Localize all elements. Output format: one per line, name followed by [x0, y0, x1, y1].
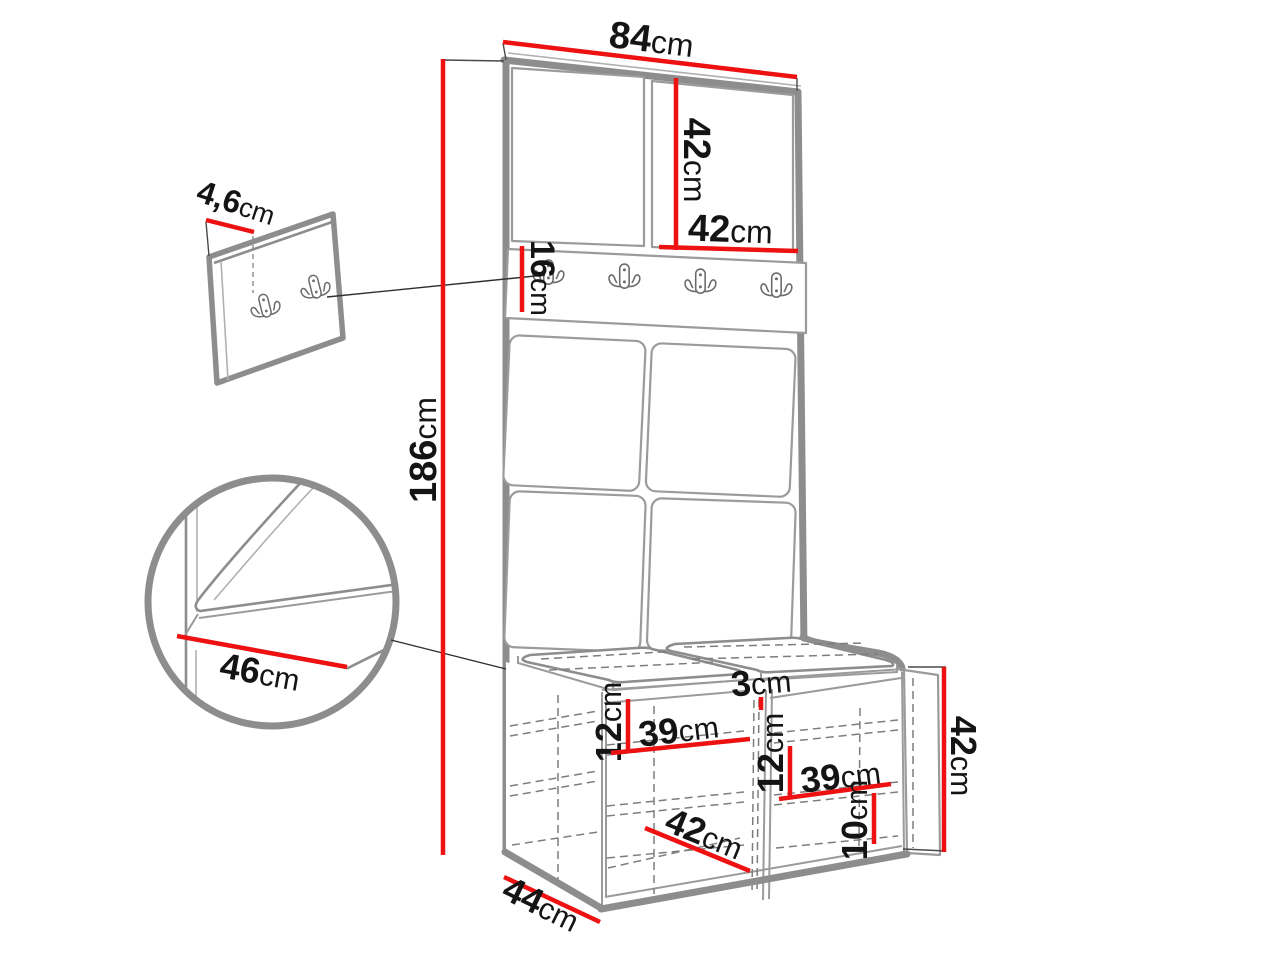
upholstered-panel — [504, 491, 646, 652]
svg-text:12cm: 12cm — [750, 713, 791, 793]
svg-text:42cm: 42cm — [687, 208, 773, 253]
svg-text:10cm: 10cm — [834, 780, 875, 860]
wall-panel-detail — [209, 214, 545, 383]
seat-corner-detail-circle — [148, 478, 506, 726]
dim-hook-rail-height: 16cm — [522, 240, 561, 316]
furniture-dimension-diagram: 84cm 186cm 42cm 42cm 16cm 4,6cm 46cm 12c… — [0, 0, 1280, 960]
dim-bench-height: 42cm — [943, 667, 984, 852]
upholstered-panel — [646, 343, 796, 497]
dim-bottom-shelf-height: 10cm — [834, 780, 875, 860]
diagram-canvas: 84cm 186cm 42cm 42cm 16cm 4,6cm 46cm 12c… — [0, 0, 1280, 960]
upholstered-panels — [503, 335, 796, 655]
upholstered-panel — [647, 498, 796, 655]
svg-text:42cm: 42cm — [675, 118, 717, 203]
svg-text:84cm: 84cm — [607, 14, 696, 66]
svg-text:42cm: 42cm — [943, 716, 984, 796]
dim-unit-height: 186cm — [403, 59, 445, 855]
leader-line-detail-circle — [391, 640, 506, 669]
upholstered-panel — [503, 335, 646, 491]
bench-right-side-panel — [904, 670, 940, 855]
svg-text:186cm: 186cm — [403, 397, 445, 503]
left-door — [512, 68, 644, 246]
dim-shelf-right-height: 12cm — [750, 713, 791, 798]
svg-text:16cm: 16cm — [523, 240, 561, 316]
